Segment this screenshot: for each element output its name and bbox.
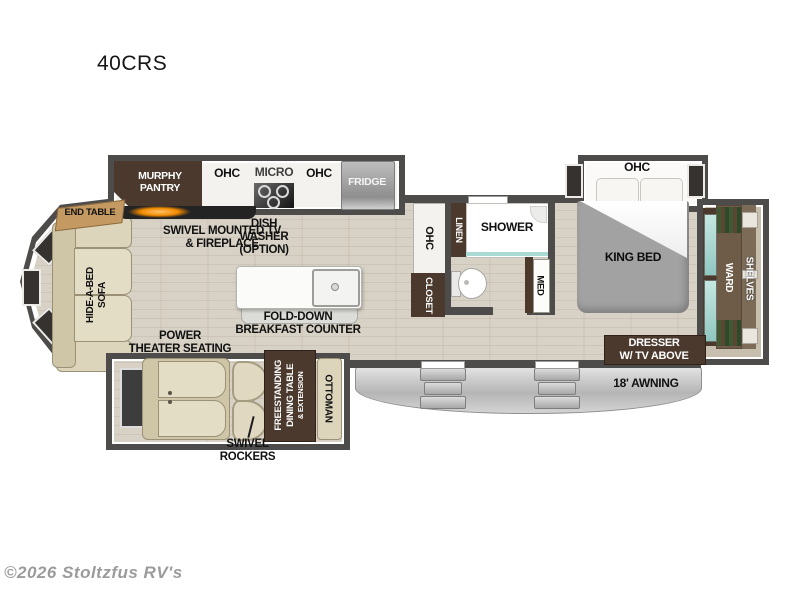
awning-label: 18' AWNING: [596, 377, 696, 391]
shower-glass: [466, 252, 548, 256]
bedroom-window: [687, 164, 705, 198]
bedroom-window: [565, 164, 583, 198]
end-table-label: END TABLE: [58, 208, 122, 219]
sink-drain-icon: [331, 283, 339, 291]
stove-burners-icon: [254, 183, 294, 208]
refrigerator-label: FRIDGE: [341, 176, 393, 188]
med-label: MED: [531, 259, 549, 311]
dishwasher-label: DISH WASHER (OPTION): [224, 218, 304, 258]
ohc-hall-label: OHC: [413, 203, 445, 273]
shower-label: SHOWER: [468, 221, 546, 235]
entry-steps: [420, 366, 466, 412]
entry-door: [421, 361, 465, 369]
microwave-label: MICRO: [250, 166, 298, 180]
ohc-kitchen-right-label: OHC: [295, 167, 343, 181]
linen-label: LINEN: [451, 203, 466, 257]
swivel-rockers-label: SWIVEL ROCKERS: [200, 438, 295, 464]
ottoman-label: OTTOMAN: [317, 358, 340, 438]
shelf-board: [742, 212, 758, 228]
hanging-clothes: [717, 320, 741, 346]
dining-table-label: FREESTANDING DINING TABLE & EXTENSION: [264, 350, 314, 440]
watermark: ©2026 Stoltzfus RV's: [4, 563, 183, 583]
pillow: [640, 178, 683, 205]
hide-a-bed-label: HIDE-A-BED SOFA: [62, 240, 132, 350]
slide-tv-panel: [120, 368, 144, 428]
floorplan-page: 40CRS 18' AWNING MURPHY PANTRY OHC MICRO: [0, 0, 800, 600]
ward-label: WARD: [716, 235, 742, 319]
ohc-bedroom-label: OHC: [612, 161, 662, 175]
floorplan-title: 40CRS: [97, 52, 167, 76]
theater-seating: [142, 358, 228, 438]
shelves-label: SHELVES: [740, 240, 758, 316]
entry-steps: [534, 366, 580, 412]
pillow: [596, 178, 639, 205]
shelf-board: [742, 328, 758, 344]
cupholder-icon: [168, 391, 172, 395]
entry-door: [535, 361, 579, 369]
closet-label: CLOSET: [411, 273, 445, 317]
bathroom-wall: [447, 307, 493, 315]
king-bed-label: KING BED: [589, 251, 677, 265]
toilet-flush-icon: [464, 280, 469, 285]
cupholder-icon: [168, 400, 172, 404]
dresser-label: DRESSER W/ TV ABOVE: [604, 337, 704, 362]
murphy-pantry-label: MURPHY PANTRY: [122, 170, 198, 194]
hanging-clothes: [717, 207, 741, 233]
ohc-kitchen-left-label: OHC: [203, 167, 251, 181]
cap-window: [22, 269, 41, 306]
